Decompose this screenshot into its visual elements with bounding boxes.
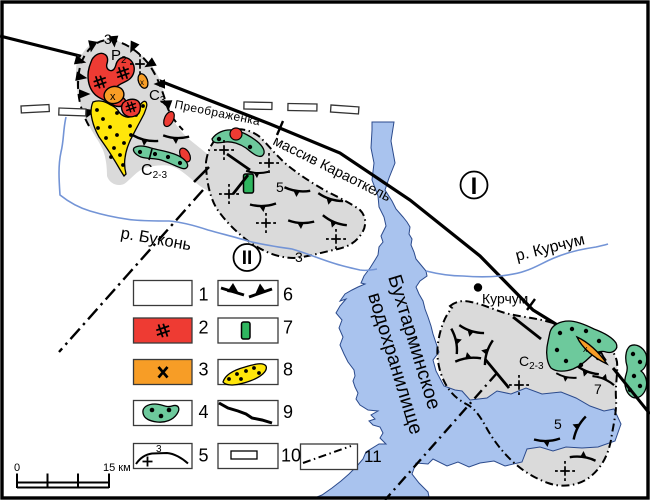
svg-text:4: 4	[199, 402, 209, 422]
svg-text:3: 3	[295, 249, 303, 265]
svg-text:x: x	[110, 91, 116, 103]
svg-text:3: 3	[199, 360, 209, 380]
svg-text:0: 0	[14, 462, 20, 474]
svg-text:3: 3	[156, 444, 162, 455]
svg-text:10: 10	[281, 446, 301, 466]
svg-text:x: x	[140, 78, 144, 87]
svg-text:5: 5	[199, 446, 209, 466]
svg-text:I: I	[471, 173, 478, 200]
svg-text:9: 9	[283, 402, 293, 422]
svg-text:1: 1	[199, 285, 209, 305]
svg-text:II: II	[242, 248, 253, 269]
svg-text:7: 7	[594, 381, 602, 397]
svg-text:5: 5	[554, 416, 562, 432]
svg-text:Курчум: Курчум	[482, 291, 528, 307]
svg-text:11: 11	[364, 447, 382, 466]
svg-text:7: 7	[283, 318, 293, 338]
svg-text:3: 3	[104, 31, 112, 47]
svg-text:x: x	[583, 344, 588, 354]
svg-text:15 км: 15 км	[103, 462, 131, 474]
svg-text:2: 2	[199, 318, 209, 338]
svg-text:5: 5	[276, 179, 284, 195]
svg-text:6: 6	[283, 285, 293, 305]
svg-text:8: 8	[283, 360, 293, 380]
